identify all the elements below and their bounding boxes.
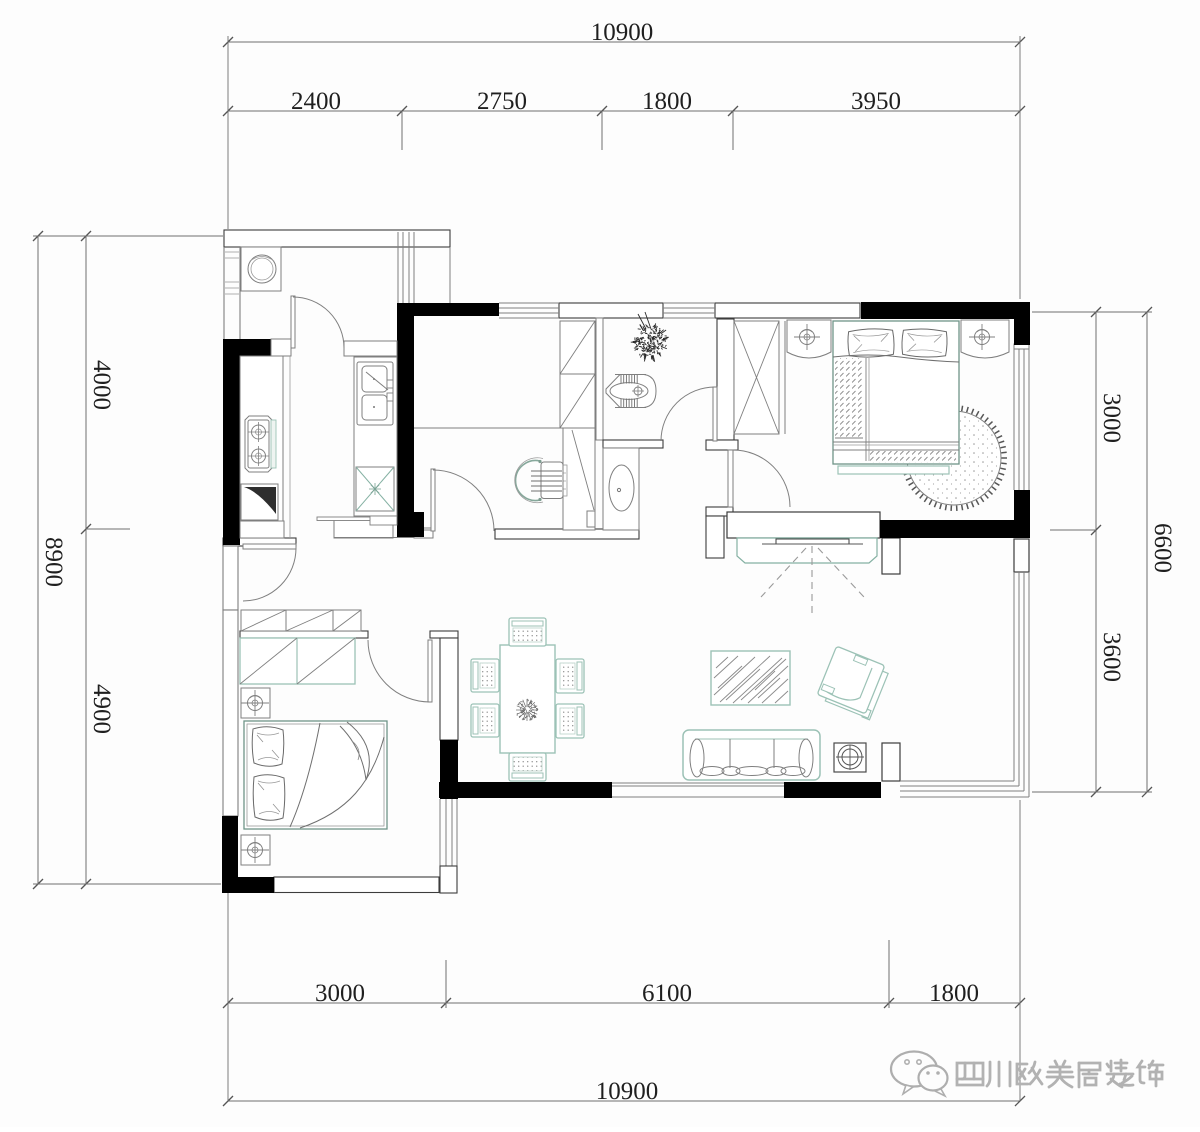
svg-text:2400: 2400 [291,88,341,115]
svg-text:6100: 6100 [642,980,692,1007]
svg-text:3000: 3000 [315,980,365,1007]
svg-text:1800: 1800 [642,88,692,115]
svg-text:8900: 8900 [40,537,67,587]
svg-text:4900: 4900 [88,684,115,734]
svg-text:1800: 1800 [929,980,979,1007]
svg-text:4000: 4000 [88,360,115,410]
svg-text:10900: 10900 [591,19,654,46]
svg-text:2750: 2750 [477,88,527,115]
svg-text:3000: 3000 [1098,393,1125,443]
svg-text:3950: 3950 [851,88,901,115]
svg-text:6600: 6600 [1149,523,1176,573]
svg-text:10900: 10900 [596,1078,659,1105]
svg-text:3600: 3600 [1098,632,1125,682]
